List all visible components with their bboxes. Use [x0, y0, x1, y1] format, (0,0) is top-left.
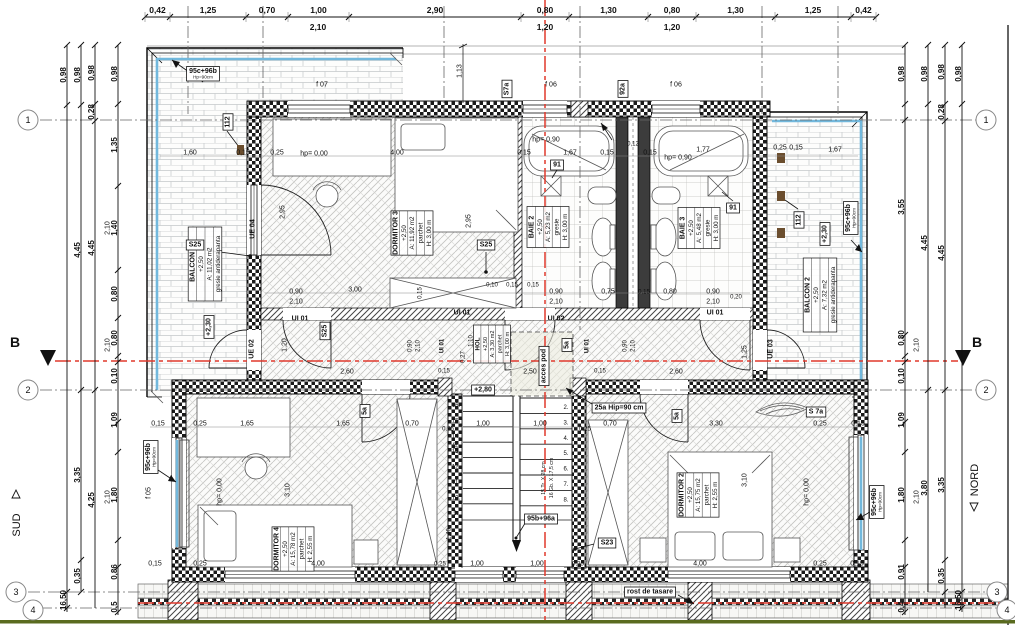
svg-text:2,60: 2,60 — [340, 369, 354, 376]
svg-text:3,00: 3,00 — [348, 287, 362, 294]
dim-side-16,50: 16,50 — [59, 589, 68, 610]
label-0_15: 0,15 — [594, 369, 606, 375]
svg-text:2,95: 2,95 — [280, 205, 287, 219]
svg-text:0,20: 0,20 — [730, 295, 742, 301]
svg-text:parchet: parchet — [299, 538, 306, 559]
svg-text:2: 2 — [983, 385, 988, 395]
nightstand — [354, 540, 378, 564]
svg-text:1,80: 1,80 — [897, 487, 906, 503]
dim-side-0,98: 0,98 — [937, 64, 946, 80]
svg-text:0,15: 0,15 — [638, 290, 650, 296]
dim-top-1,25: 1,25 — [200, 5, 217, 15]
svg-text:1,09: 1,09 — [897, 412, 906, 428]
svg-text:2,10: 2,10 — [416, 340, 422, 352]
svg-text:A: 15,78 m2: A: 15,78 m2 — [290, 532, 297, 566]
svg-text:0,90: 0,90 — [289, 289, 303, 296]
nightstand — [774, 538, 800, 562]
label-0_25: 0,25 — [813, 421, 827, 428]
dim-side-3,35: 3,35 — [73, 467, 82, 483]
svg-text:0,27: 0,27 — [461, 351, 467, 363]
label-0_25: 0,25 — [442, 427, 454, 433]
label-0_25: 0,25 — [193, 561, 207, 568]
svg-text:112: 112 — [225, 116, 232, 127]
dim-side-3,55: 3,55 — [897, 199, 906, 215]
label-0_15: 0,15 — [789, 145, 803, 152]
door-opening — [362, 380, 410, 394]
label-rost_de_tasare: rost de tasare — [625, 587, 676, 597]
room-label-baie-2: BAIE 2+2,50A: 5,23 m2gresieH: 3,00 m — [527, 207, 569, 248]
label-3_10: 3,10 — [285, 483, 292, 497]
svg-text:DORMITOR 4: DORMITOR 4 — [273, 527, 280, 571]
label-2_95: 2,95 — [280, 205, 287, 219]
svg-text:S 7a: S 7a — [809, 409, 824, 416]
svg-text:+2,50: +2,50 — [198, 256, 205, 272]
svg-text:1,65: 1,65 — [240, 421, 254, 428]
svg-text:UE 03: UE 03 — [768, 339, 775, 359]
svg-text:1,40: 1,40 — [447, 528, 453, 540]
dim-side-3,35: 3,35 — [937, 477, 946, 493]
svg-text:1,13: 1,13 — [457, 64, 464, 78]
svg-text:gresie antiderapanta: gresie antiderapanta — [830, 266, 837, 323]
label-0_15: 0,15 — [438, 369, 450, 375]
label-UI_01: UI 01 — [585, 338, 591, 353]
svg-text:2,10: 2,10 — [105, 490, 112, 504]
svg-text:0,15: 0,15 — [850, 561, 864, 568]
label-5a: 5a — [672, 410, 682, 423]
stair-number: 14. — [452, 434, 461, 440]
label-UE_02: UE 02 — [249, 339, 256, 359]
label-2_10: 2,10 — [105, 338, 112, 352]
svg-text:UI 01: UI 01 — [454, 310, 471, 317]
dim-side-0,28: 0,28 — [87, 104, 96, 120]
svg-text:0,25: 0,25 — [193, 561, 207, 568]
label-UI_01: UI 01 — [454, 310, 471, 317]
svg-text:A: 7,32 m2: A: 7,32 m2 — [821, 279, 828, 309]
dim-side-4,25: 4,25 — [87, 492, 96, 508]
label-2_10: 2,10 — [549, 299, 563, 306]
svg-text:1,25: 1,25 — [742, 345, 749, 359]
svg-text:2,10: 2,10 — [289, 299, 303, 306]
door-opening — [640, 380, 688, 394]
label-0_25: 0,25 — [579, 427, 591, 433]
label-1_67: 1,67 — [563, 150, 577, 157]
svg-text:+2,50: +2,50 — [537, 219, 544, 235]
label-S_7a: S 7a — [806, 407, 826, 417]
svg-text:1,10: 1,10 — [469, 335, 475, 347]
label-hp__0_00: hp= 0,00 — [804, 478, 811, 506]
svg-text:BALCON 2: BALCON 2 — [805, 277, 812, 313]
svg-text:1,00: 1,00 — [476, 421, 490, 428]
label-0_25: 0,25 — [813, 561, 827, 568]
svg-text:0,91: 0,91 — [897, 564, 906, 580]
label-2_60: 2,60 — [669, 369, 683, 376]
svg-text:H: 3,00 m: H: 3,00 m — [505, 332, 511, 357]
dim-side-0,86: 0,86 — [110, 564, 119, 580]
room-label-baie-3: BAIE 3+2,50A: 5,48 m2gresieH: 3,00 m — [678, 208, 720, 249]
dim-top-1,30: 1,30 — [727, 5, 744, 15]
dim-side-0,98: 0,98 — [110, 66, 119, 82]
label-0_90: 0,90 — [706, 289, 720, 296]
dim-top-2,90: 2,90 — [427, 5, 444, 15]
svg-text:0,98: 0,98 — [920, 66, 929, 82]
label-0_15: 0,15 — [148, 561, 162, 568]
svg-text:0,98: 0,98 — [87, 65, 96, 81]
label-0_15: 0,15 — [418, 287, 424, 299]
axis-bubble-3: 3 — [987, 582, 1007, 602]
svg-text:4,00: 4,00 — [311, 561, 325, 568]
svg-text:4,45: 4,45 — [73, 242, 82, 258]
label-112: 112 — [794, 212, 804, 228]
svg-text:A: 5,48 m2: A: 5,48 m2 — [696, 212, 703, 242]
svg-text:UI 02: UI 02 — [548, 316, 565, 323]
room-label-dormitor-2: DORMITOR 2+2,50A: 15,75 m2parchetH: 2,55… — [677, 473, 719, 517]
svg-text:0,80: 0,80 — [663, 289, 677, 296]
svg-text:1: 1 — [983, 115, 988, 125]
svg-text:hp= 0,00: hp= 0,00 — [804, 478, 811, 506]
svg-text:1,60: 1,60 — [183, 150, 197, 157]
room-label-hol: HOL+2,50A: 3,30 m2parchetH: 3,00 m — [474, 325, 512, 363]
dim-top-sub-1,20: 1,20 — [664, 22, 681, 32]
svg-text:f 06: f 06 — [670, 82, 682, 89]
svg-text:1,77: 1,77 — [696, 147, 710, 154]
svg-text:0,70: 0,70 — [405, 421, 419, 428]
svg-text:4,45: 4,45 — [937, 245, 946, 261]
desk — [197, 398, 290, 457]
svg-text:Hp=90cm: Hp=90cm — [878, 492, 883, 512]
svg-text:0,98: 0,98 — [110, 66, 119, 82]
settlement-joint-pier — [571, 101, 588, 117]
svg-text:0,90: 0,90 — [549, 289, 563, 296]
svg-text:1,20: 1,20 — [282, 338, 289, 352]
svg-text:92a: 92a — [620, 83, 627, 95]
svg-text:gresie: gresie — [554, 218, 561, 235]
svg-text:+2,50: +2,50 — [483, 337, 489, 351]
label-hp__0_90: hp= 0,90 — [532, 137, 560, 144]
svg-text:0,10: 0,10 — [897, 368, 906, 384]
svg-text:4,25: 4,25 — [87, 492, 96, 508]
svg-text:0,15: 0,15 — [506, 283, 518, 289]
svg-text:0,15: 0,15 — [789, 145, 803, 152]
exterior-paving-strip — [138, 580, 1008, 620]
dim-top-1,30: 1,30 — [600, 5, 617, 15]
label-0_25: 0,25 — [434, 562, 446, 568]
dim-side-0,98: 0,98 — [59, 67, 68, 83]
dim-side-16,50: 16,50 — [954, 589, 963, 610]
svg-text:1,00: 1,00 — [530, 561, 544, 568]
dim-side-0,5: 0,5 — [110, 601, 119, 613]
pillow — [401, 124, 445, 150]
stair-number: 6. — [563, 467, 568, 473]
label-3_10: 3,10 — [742, 473, 749, 487]
dim-side-3,80: 3,80 — [920, 480, 929, 496]
nightstand — [640, 538, 666, 562]
dim-side-0,98: 0,98 — [87, 65, 96, 81]
label-1_10: 1,10 — [469, 335, 475, 347]
dim-side-0,4: 0,4 — [897, 601, 906, 613]
svg-text:1,65: 1,65 — [336, 421, 350, 428]
label-2_10: 2,10 — [706, 299, 720, 306]
label-+2_30: +2,30 — [820, 223, 830, 246]
label-1_65: 1,65 — [336, 421, 350, 428]
svg-text:parchet: parchet — [418, 222, 425, 243]
dim-top-1,25: 1,25 — [805, 5, 822, 15]
sink — [652, 187, 680, 204]
label-91: 91 — [551, 160, 564, 170]
stair-number: 11. — [452, 480, 460, 486]
svg-text:3: 3 — [994, 587, 999, 597]
window — [652, 101, 700, 117]
stair-number: 3. — [563, 420, 568, 426]
label-4_00: 4,00 — [311, 561, 325, 568]
label-0_25: 0,25 — [773, 145, 787, 152]
svg-text:parchet: parchet — [498, 334, 504, 353]
svg-text:+2,50: +2,50 — [282, 541, 289, 557]
dim-side-0,98: 0,98 — [897, 66, 906, 82]
svg-text:1: 1 — [25, 115, 30, 125]
label-1_13: 1,13 — [457, 64, 464, 78]
label-S25: S25 — [186, 240, 204, 250]
svg-text:0,25: 0,25 — [442, 427, 454, 433]
svg-text:0,15: 0,15 — [438, 369, 450, 375]
label-f_07: f 07 — [316, 82, 328, 89]
svg-text:0,25: 0,25 — [813, 421, 827, 428]
ground-line-green — [0, 620, 1015, 624]
dim-side-0,98: 0,98 — [954, 66, 963, 82]
label-0_15: 0,15 — [600, 150, 614, 157]
label-acces_pod: acces pod — [539, 346, 549, 385]
label-3_30: 3,30 — [709, 421, 723, 428]
label-3_00: 3,00 — [348, 287, 362, 294]
svg-text:0,98: 0,98 — [73, 67, 82, 83]
svg-text:4: 4 — [30, 605, 35, 615]
svg-text:+2,50: +2,50 — [813, 287, 820, 303]
room-label-balcon-1: BALCON 1+2,50A: 11,02 m2gresie antiderap… — [188, 227, 222, 301]
svg-text:hp= 0,00: hp= 0,00 — [217, 478, 224, 506]
label-0_27: 0,27 — [461, 351, 467, 363]
label-0_70: 0,70 — [603, 421, 617, 428]
svg-text:0,15: 0,15 — [851, 421, 865, 428]
label-1_00: 1,00 — [476, 421, 490, 428]
svg-text:Hp=90cm: Hp=90cm — [152, 447, 157, 467]
stair-note-2: 16 Gb. X 17,5 cm — [549, 458, 555, 498]
svg-text:gresie: gresie — [705, 219, 712, 236]
label-4_00: 4,00 — [390, 150, 404, 157]
svg-text:1,09: 1,09 — [110, 412, 119, 428]
label-2_95: 2,95 — [466, 214, 473, 228]
svg-text:0,98: 0,98 — [59, 67, 68, 83]
section-letter-right: B — [972, 334, 982, 350]
svg-text:UI 01: UI 01 — [292, 316, 309, 323]
svg-text:3,35: 3,35 — [73, 467, 82, 483]
label-2_10: 2,10 — [631, 340, 637, 352]
svg-text:UI 01: UI 01 — [440, 338, 446, 353]
dim-top-0,70: 0,70 — [259, 5, 276, 15]
svg-text:1,67: 1,67 — [563, 150, 577, 157]
label-0_15: 0,15 — [151, 421, 165, 428]
svg-text:parchet: parchet — [704, 484, 711, 505]
svg-text:2,10: 2,10 — [549, 299, 563, 306]
svg-text:3,10: 3,10 — [742, 473, 749, 487]
label-0_25: 0,25 — [572, 562, 584, 568]
axis-bubble-2: 2 — [976, 380, 996, 400]
label-95c+96b: 95c+96bHp=90cm — [187, 67, 220, 82]
label-2_60: 2,60 — [340, 369, 354, 376]
label-0_25: 0,25 — [193, 421, 207, 428]
svg-text:4,45: 4,45 — [920, 235, 929, 251]
svg-text:0,15: 0,15 — [643, 150, 657, 157]
dim-side-0,10: 0,10 — [110, 368, 119, 384]
desk — [273, 119, 391, 176]
dim-side-4,45: 4,45 — [87, 240, 96, 256]
label-0_90: 0,90 — [623, 340, 629, 352]
label-95c+96b: 95c+96bHp=90cm — [144, 441, 159, 474]
label-0_15: 0,15 — [850, 561, 864, 568]
dim-side-1,80: 1,80 — [897, 487, 906, 503]
label-0_25: 0,25 — [270, 150, 284, 157]
svg-text:+2,30: +2,30 — [206, 318, 213, 336]
svg-text:0,80: 0,80 — [110, 286, 119, 302]
stair-number: 5. — [563, 451, 568, 457]
label-95c+96b: 95c+96bHp=90cm — [844, 202, 859, 235]
svg-text:+2,50: +2,50 — [688, 220, 695, 236]
svg-text:0,15: 0,15 — [151, 421, 165, 428]
label-UI_01: UI 01 — [440, 338, 446, 353]
label-0_20: 0,20 — [730, 295, 742, 301]
svg-text:3,10: 3,10 — [285, 483, 292, 497]
label-112: 112 — [223, 114, 233, 130]
label-2_50: 2,50 — [523, 369, 537, 376]
label-+2_30: +2,30 — [204, 316, 214, 339]
stair-note-1: 15 Tr. X 28 cm — [541, 461, 547, 494]
north-label: NORD — [969, 464, 981, 496]
door-opening — [753, 330, 767, 370]
label-1_00: 1,00 — [530, 561, 544, 568]
window — [172, 438, 186, 548]
stair-number: 16. — [452, 403, 461, 409]
svg-text:0,25: 0,25 — [579, 427, 591, 433]
stair-number: 8. — [563, 497, 568, 503]
floor-drain — [541, 176, 561, 196]
label-UE_04: UE 04 — [250, 219, 257, 239]
svg-text:f 07: f 07 — [316, 82, 328, 89]
svg-text:0,98: 0,98 — [937, 64, 946, 80]
label-hp__0_00: hp= 0,00 — [300, 151, 328, 158]
dim-side-4,45: 4,45 — [73, 242, 82, 258]
label-1_65: 1,65 — [240, 421, 254, 428]
toilet — [654, 218, 676, 256]
svg-text:0,35: 0,35 — [937, 568, 946, 584]
svg-text:Hp=90cm: Hp=90cm — [852, 208, 857, 228]
svg-text:0,5: 0,5 — [110, 601, 119, 613]
dim-side-0,98: 0,98 — [73, 67, 82, 83]
stair-number: 10. — [452, 495, 461, 501]
wall-socket — [777, 228, 785, 238]
svg-text:A: 15,75 m2: A: 15,75 m2 — [695, 478, 702, 512]
label-UI_02: UI 02 — [548, 316, 565, 323]
svg-text:A: 5,23 m2: A: 5,23 m2 — [545, 211, 552, 241]
label-1_00: 1,00 — [470, 561, 484, 568]
svg-text:1,35: 1,35 — [110, 137, 119, 153]
svg-text:H: 3,00 m: H: 3,00 m — [426, 220, 433, 247]
label-1_60: 1,60 — [183, 150, 197, 157]
label-92a: 92a — [618, 81, 628, 98]
svg-text:0,15: 0,15 — [418, 287, 424, 299]
svg-text:0,28: 0,28 — [937, 104, 946, 120]
svg-text:2: 2 — [25, 385, 30, 395]
svg-text:16,50: 16,50 — [954, 589, 963, 610]
label-S25: S25 — [320, 322, 330, 340]
svg-text:0,35: 0,35 — [73, 568, 82, 584]
dim-side-0,35: 0,35 — [73, 568, 82, 584]
label-0_15: 0,15 — [506, 283, 518, 289]
room-label-balcon-2: BALCON 2+2,50A: 7,32 m2gresie antiderapa… — [803, 258, 837, 332]
dim-top-0,42: 0,42 — [855, 5, 872, 15]
svg-text:4,00: 4,00 — [390, 150, 404, 157]
svg-text:A: 11,92 m2: A: 11,92 m2 — [409, 216, 416, 249]
label-UE_03: UE 03 — [768, 339, 775, 359]
svg-text:A: 3,30 m2: A: 3,30 m2 — [490, 330, 496, 357]
svg-text:5a: 5a — [674, 412, 681, 420]
svg-text:0,98: 0,98 — [954, 66, 963, 82]
svg-text:2,10: 2,10 — [105, 221, 112, 235]
svg-text:16 Gb. X 17,5 cm: 16 Gb. X 17,5 cm — [549, 458, 555, 498]
svg-text:0,90: 0,90 — [623, 340, 629, 352]
label-hp__0_90: hp= 0,90 — [664, 155, 692, 162]
dim-top-1,00: 1,00 — [310, 5, 327, 15]
svg-text:0,98: 0,98 — [897, 66, 906, 82]
svg-text:4: 4 — [1004, 605, 1009, 615]
svg-text:0,25: 0,25 — [813, 561, 827, 568]
dim-side-0,80: 0,80 — [897, 330, 906, 346]
svg-text:0,25: 0,25 — [193, 421, 207, 428]
svg-text:H: 2,55 m: H: 2,55 m — [712, 482, 719, 509]
label-0_15: 0,15 — [638, 290, 650, 296]
dim-side-1,35: 1,35 — [110, 137, 119, 153]
axis-bubble-4: 4 — [997, 600, 1015, 620]
label-25a_Hip_90_cm: 25a Hip=90 cm — [592, 403, 646, 413]
label-5a: 5a — [360, 405, 370, 418]
svg-text:0,10: 0,10 — [110, 368, 119, 384]
svg-text:3,55: 3,55 — [897, 199, 906, 215]
label-0_90: 0,90 — [549, 289, 563, 296]
label-1_20: 1,20 — [282, 338, 289, 352]
svg-text:f 06: f 06 — [545, 82, 557, 89]
floor-plan-sheet: 16.15.14.13.12.11.10.9.2.3.4.5.6.7.8.15 … — [0, 0, 1015, 625]
label-0_10: 0,10 — [486, 283, 498, 289]
stair-number: 4. — [563, 436, 568, 442]
svg-text:3,30: 3,30 — [709, 421, 723, 428]
svg-text:S25: S25 — [322, 325, 329, 338]
dim-side-0,10: 0,10 — [897, 368, 906, 384]
label-f_05: f 05 — [146, 487, 153, 499]
svg-text:H: 3,00 m: H: 3,00 m — [562, 214, 569, 241]
svg-text:5a: 5a — [564, 341, 571, 349]
svg-text:0,15: 0,15 — [236, 150, 250, 157]
window — [288, 101, 350, 117]
label-f_06: f 06 — [545, 82, 557, 89]
axis-bubble-2: 2 — [18, 380, 38, 400]
svg-text:+2,80: +2,80 — [474, 387, 492, 394]
label-S7a: S7a — [502, 80, 512, 98]
label-2_10: 2,10 — [914, 338, 921, 352]
svg-text:4,00: 4,00 — [693, 561, 707, 568]
label-0_90: 0,90 — [289, 289, 303, 296]
label-0_75: 0,75 — [601, 289, 615, 296]
svg-text:0,25: 0,25 — [434, 562, 446, 568]
svg-text:2,10: 2,10 — [706, 299, 720, 306]
svg-text:25a Hip=90 cm: 25a Hip=90 cm — [595, 405, 644, 412]
balcony-1-floor-top — [247, 48, 403, 101]
